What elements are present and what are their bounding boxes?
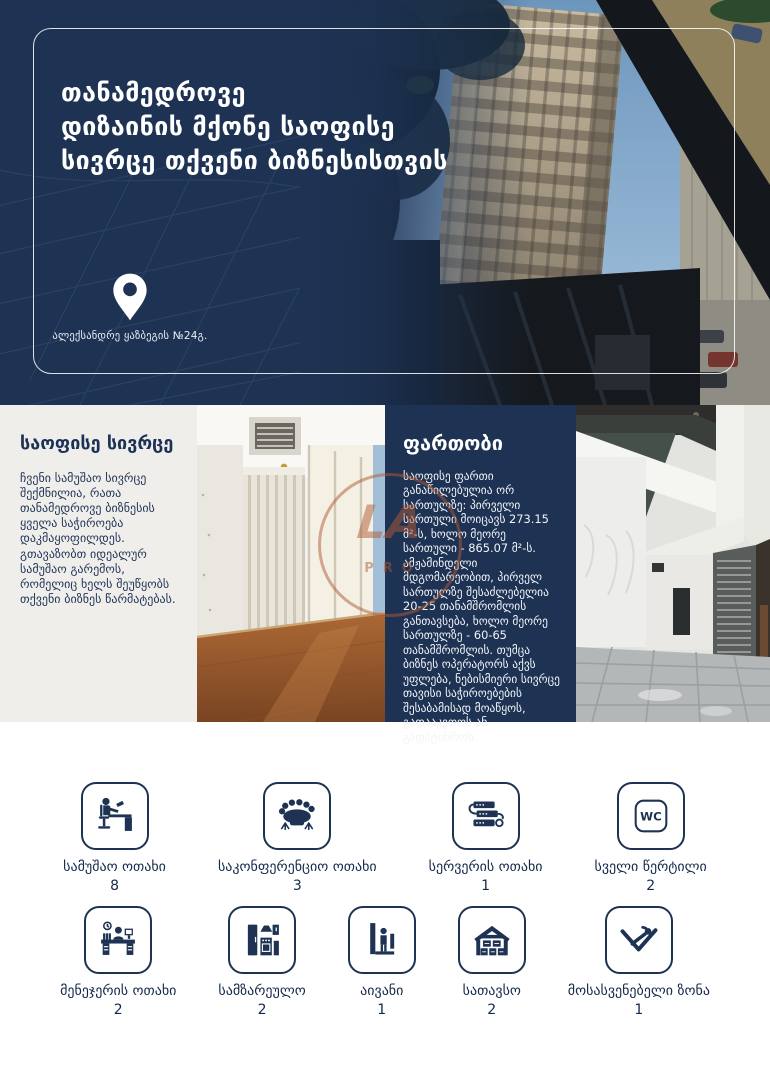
amenity-count: 2 bbox=[646, 878, 655, 894]
amenities-section: სამუშაო ოთახი 8 საკონფერენციო ოთახი 3 სე… bbox=[0, 722, 770, 1018]
area-body: საოფისე ფართი განაწილებულია ორ სართულზე:… bbox=[403, 469, 563, 744]
amenity-item: WC სველი წერტილი 2 bbox=[595, 782, 707, 894]
office-space-panel: საოფისე სივრცე ჩვენი სამუშაო სივრცე შექმ… bbox=[0, 405, 197, 722]
amenities-row-1: სამუშაო ოთახი 8 საკონფერენციო ოთახი 3 სე… bbox=[0, 782, 770, 894]
workstation-icon bbox=[81, 782, 149, 850]
office-interior-photo bbox=[197, 405, 385, 722]
amenity-item: საკონფერენციო ოთახი 3 bbox=[218, 782, 377, 894]
address-text: ალექსანდრე ყაზბეგის №24გ. bbox=[48, 330, 212, 342]
hero-title: თანამედროვე დიზაინის მქონე საოფისე სივრც… bbox=[61, 76, 448, 178]
amenity-item: აივანი 1 bbox=[348, 906, 416, 1018]
amenity-label: სამუშაო ოთახი bbox=[63, 859, 166, 875]
amenity-item: მოსასვენებელი ზონა 1 bbox=[568, 906, 710, 1018]
amenity-item: სერვერის ოთახი 1 bbox=[429, 782, 543, 894]
amenity-label: სამზარეულო bbox=[218, 983, 305, 999]
amenity-count: 1 bbox=[377, 1002, 386, 1018]
hero-title-line: დიზაინის მქონე საოფისე bbox=[61, 110, 448, 144]
lobby-photo bbox=[576, 405, 770, 722]
amenity-count: 2 bbox=[487, 1002, 496, 1018]
amenity-label: საკონფერენციო ოთახი bbox=[218, 859, 377, 875]
area-panel: ფართობი საოფისე ფართი განაწილებულია ორ ს… bbox=[385, 405, 576, 722]
amenity-label: სერვერის ოთახი bbox=[429, 859, 543, 875]
office-space-heading: საოფისე სივრცე bbox=[20, 433, 181, 454]
amenity-label: მენეჯერის ოთახი bbox=[60, 983, 176, 999]
details-section: საოფისე სივრცე ჩვენი სამუშაო სივრცე შექმ… bbox=[0, 405, 770, 722]
location-pin-icon bbox=[112, 272, 148, 322]
area-heading: ფართობი bbox=[403, 431, 563, 455]
amenity-label: აივანი bbox=[360, 983, 403, 999]
storage-icon bbox=[458, 906, 526, 974]
amenity-item: სამუშაო ოთახი 8 bbox=[63, 782, 166, 894]
svg-text:WC: WC bbox=[640, 809, 662, 823]
conference-room-icon bbox=[263, 782, 331, 850]
hero-section: თანამედროვე დიზაინის მქონე საოფისე სივრც… bbox=[0, 0, 770, 405]
brochure-page: თანამედროვე დიზაინის მქონე საოფისე სივრც… bbox=[0, 0, 770, 1078]
kitchen-icon bbox=[228, 906, 296, 974]
amenity-label: მოსასვენებელი ზონა bbox=[568, 983, 710, 999]
amenity-count: 1 bbox=[634, 1002, 643, 1018]
hero-title-line: თანამედროვე bbox=[61, 76, 448, 110]
manager-office-icon bbox=[84, 906, 152, 974]
rest-zone-icon bbox=[605, 906, 673, 974]
amenity-item: სათავსო 2 bbox=[458, 906, 526, 1018]
amenity-count: 1 bbox=[481, 878, 490, 894]
amenity-item: მენეჯერის ოთახი 2 bbox=[60, 906, 176, 1018]
amenity-count: 8 bbox=[110, 878, 119, 894]
amenity-label: სველი წერტილი bbox=[595, 859, 707, 875]
amenity-count: 2 bbox=[114, 1002, 123, 1018]
amenity-label: სათავსო bbox=[463, 983, 521, 999]
amenities-row-2: მენეჯერის ოთახი 2 სამზარეულო 2 აივანი 1 … bbox=[0, 906, 770, 1018]
office-space-body: ჩვენი სამუშაო სივრცე შექმნილია, რათა თან… bbox=[20, 471, 181, 607]
amenity-count: 2 bbox=[258, 1002, 267, 1018]
server-icon bbox=[452, 782, 520, 850]
amenity-item: სამზარეულო 2 bbox=[218, 906, 305, 1018]
wc-icon: WC bbox=[617, 782, 685, 850]
amenity-count: 3 bbox=[293, 878, 302, 894]
balcony-icon bbox=[348, 906, 416, 974]
hero-title-line: სივრცე თქვენი ბიზნესისთვის bbox=[61, 144, 448, 178]
